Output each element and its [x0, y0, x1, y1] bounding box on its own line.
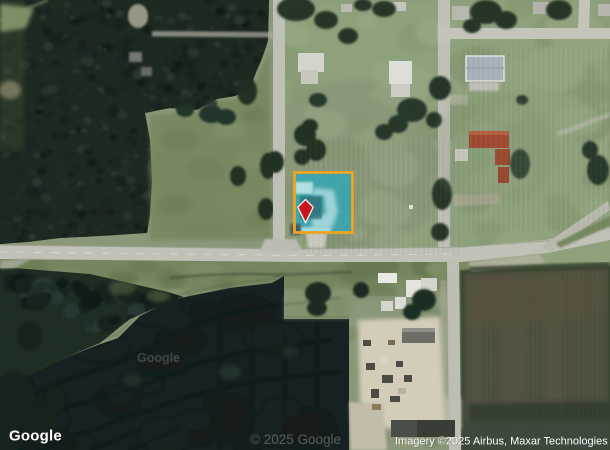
svg-text:Google: Google: [9, 428, 62, 445]
svg-text:Imagery ©2025 Airbus, Maxar Te: Imagery ©2025 Airbus, Maxar Technologies: [395, 436, 608, 448]
svg-text:© 2025 Google: © 2025 Google: [250, 432, 341, 447]
svg-text:Google: Google: [137, 351, 180, 365]
